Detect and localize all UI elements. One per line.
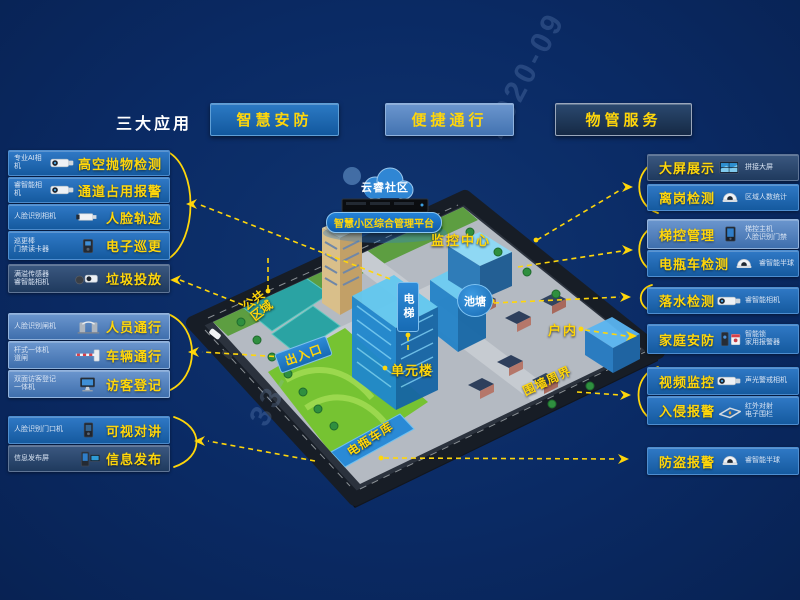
device-label: 满溢传感器 睿智能相机 — [9, 271, 71, 287]
feature-row-left-7[interactable]: 双面访客登记 一体机访客登记 — [8, 370, 170, 398]
feature-label: 访客登记 — [106, 375, 169, 394]
feature-label: 垃圾投放 — [106, 269, 169, 288]
device-label: 睿智能半球 — [745, 457, 798, 465]
turnstile-icon — [73, 318, 103, 336]
feature-label: 离岗检测 — [648, 188, 715, 207]
feature-row-right-4[interactable]: 落水检测睿智能相机 — [647, 287, 799, 314]
feature-label: 信息发布 — [106, 449, 169, 468]
device-icon-wrap — [71, 346, 106, 364]
feature-label: 人员通行 — [106, 317, 169, 336]
dome-camera-icon — [715, 189, 745, 207]
device-icon-wrap — [715, 372, 745, 390]
barrier-gate-icon — [73, 346, 103, 364]
cloud-community-label: 云睿社区 — [352, 179, 418, 195]
app-button-access[interactable]: 便捷通行 — [385, 103, 514, 136]
device-icon-wrap — [71, 237, 106, 255]
device-label: 杆式一体机 道闸 — [9, 347, 71, 363]
device-icon-wrap — [71, 375, 106, 393]
map-label-indoor: 户内 — [548, 320, 578, 339]
feature-row-left-6[interactable]: 杆式一体机 道闸车辆通行 — [8, 341, 170, 369]
device-label: 人脸识别闸机 — [9, 323, 71, 331]
feature-label: 视频监控 — [648, 372, 715, 391]
elevator-panel-icon — [715, 225, 745, 243]
card-reader-icon — [73, 237, 103, 255]
device-icon-wrap — [71, 318, 106, 336]
door-station-icon — [73, 421, 103, 439]
device-label: 红外对射 电子围栏 — [745, 403, 798, 419]
feature-row-left-9[interactable]: 信息发布屏信息发布 — [8, 445, 170, 472]
map-label-monitor-center: 监控中心 — [431, 230, 491, 249]
platform-banner: 智慧小区综合管理平台 — [326, 212, 442, 233]
feature-row-left-5[interactable]: 人脸识别闸机人员通行 — [8, 313, 170, 340]
device-icon-wrap — [715, 292, 745, 310]
signage-screen-icon — [73, 450, 103, 468]
feature-label: 高空抛物检测 — [78, 154, 169, 173]
device-label: 专业AI相机 — [9, 155, 48, 171]
feature-label: 通道占用报警 — [78, 181, 169, 200]
feature-label: 入侵报警 — [648, 401, 715, 420]
device-icon-wrap — [71, 270, 106, 288]
dome-camera-icon — [729, 255, 759, 273]
box-camera-icon — [73, 208, 103, 226]
device-icon-wrap — [715, 189, 745, 207]
device-icon-wrap — [729, 255, 759, 273]
map-label-unit-building: 单元楼 — [391, 360, 433, 379]
map-tag-elevator: 电梯 — [397, 282, 419, 332]
feature-row-right-2[interactable]: 梯控管理梯控主机 人脸识别门禁 — [647, 219, 799, 249]
device-icon-wrap — [71, 421, 106, 439]
feature-row-right-7[interactable]: 入侵报警红外对射 电子围栏 — [647, 396, 799, 425]
device-label: 巡更棒 门禁读卡器 — [9, 238, 71, 254]
map-badge-pond: 池塘 — [457, 284, 493, 317]
device-label: 人脸识别门口机 — [9, 426, 71, 434]
feature-label: 车辆通行 — [106, 346, 169, 365]
device-label: 信息发布屏 — [9, 455, 71, 463]
feature-row-left-2[interactable]: 人脸识别相机人脸轨迹 — [8, 204, 170, 230]
device-label: 睿智能相机 — [745, 297, 798, 305]
dome-camera-icon — [715, 452, 745, 470]
bullet-camera-icon — [48, 181, 78, 199]
device-label: 人脸识别相机 — [9, 213, 71, 221]
feature-label: 大屏展示 — [648, 158, 715, 177]
feature-label: 落水检测 — [648, 291, 715, 310]
feature-row-left-3[interactable]: 巡更棒 门禁读卡器电子巡更 — [8, 231, 170, 260]
feature-row-right-3[interactable]: 电瓶车检测睿智能半球 — [647, 250, 799, 277]
feature-label: 人脸轨迹 — [106, 208, 169, 227]
app-button-security[interactable]: 智慧安防 — [210, 103, 339, 136]
feature-row-left-1[interactable]: 睿智能相机通道占用报警 — [8, 177, 170, 203]
feature-row-right-6[interactable]: 视频监控声光警戒相机 — [647, 367, 799, 395]
feature-label: 电瓶车检测 — [648, 254, 729, 273]
app-button-property[interactable]: 物管服务 — [555, 103, 692, 136]
lock-alarm-icon — [715, 330, 745, 348]
device-icon-wrap — [715, 225, 745, 243]
device-label: 拼接大屏 — [745, 164, 798, 172]
device-label: 区域人数统计 — [745, 194, 798, 202]
feature-row-left-8[interactable]: 人脸识别门口机可视对讲 — [8, 416, 170, 444]
smart-community-dashboard: 2020-09 33- 三大应用 智慧安防 便捷通行 物管服务 专业AI相机高空… — [0, 0, 800, 600]
device-label: 双面访客登记 一体机 — [9, 376, 71, 392]
feature-label: 电子巡更 — [106, 236, 169, 255]
feature-label: 防盗报警 — [648, 452, 715, 471]
device-label: 睿智能半球 — [759, 260, 798, 268]
feature-row-right-8[interactable]: 防盗报警睿智能半球 — [647, 447, 799, 475]
device-icon-wrap — [715, 452, 745, 470]
feature-label: 可视对讲 — [106, 421, 169, 440]
video-wall-icon — [715, 159, 745, 177]
visitor-kiosk-icon — [73, 375, 103, 393]
page-title: 三大应用 — [116, 110, 192, 134]
feature-row-left-4[interactable]: 满溢传感器 睿智能相机垃圾投放 — [8, 264, 170, 293]
feature-row-right-0[interactable]: 大屏展示拼接大屏 — [647, 154, 799, 181]
device-icon-wrap — [715, 402, 745, 420]
device-label: 梯控主机 人脸识别门禁 — [745, 226, 798, 242]
device-label: 智能锁 家用报警器 — [745, 331, 798, 347]
device-icon-wrap — [71, 208, 106, 226]
device-icon-wrap — [48, 154, 78, 172]
feature-row-right-5[interactable]: 家庭安防智能锁 家用报警器 — [647, 324, 799, 354]
device-icon-wrap — [48, 181, 78, 199]
bullet-camera-icon — [715, 292, 745, 310]
feature-label: 家庭安防 — [648, 330, 715, 349]
bullet-camera-icon — [715, 372, 745, 390]
device-icon-wrap — [715, 159, 745, 177]
bullet-camera-icon — [48, 154, 78, 172]
feature-label: 梯控管理 — [648, 225, 715, 244]
sensor-camera-icon — [73, 270, 103, 288]
fence-perimeter-icon — [715, 402, 745, 420]
device-label: 睿智能相机 — [9, 182, 48, 198]
device-icon-wrap — [715, 330, 745, 348]
feature-row-right-1[interactable]: 离岗检测区域人数统计 — [647, 184, 799, 211]
device-label: 声光警戒相机 — [745, 377, 798, 385]
feature-row-left-0[interactable]: 专业AI相机高空抛物检测 — [8, 150, 170, 176]
device-icon-wrap — [71, 450, 106, 468]
